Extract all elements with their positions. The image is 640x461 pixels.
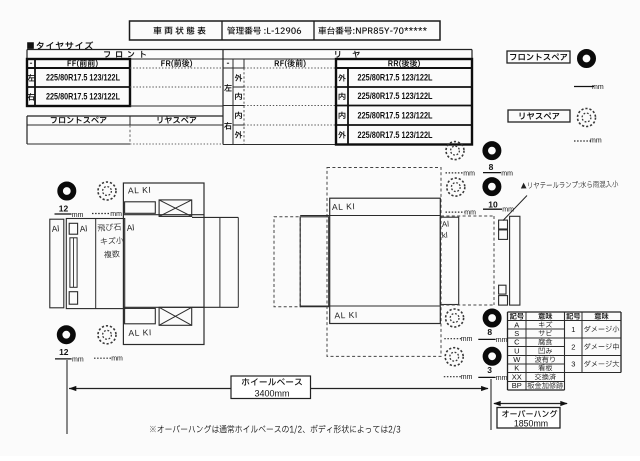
svg-text:mm: mm	[496, 337, 508, 344]
svg-text:225/80R17.5 123/122L: 225/80R17.5 123/122L	[358, 130, 433, 140]
svg-text:225/80R17.5 123/122L: 225/80R17.5 123/122L	[46, 72, 120, 82]
svg-text:Al: Al	[51, 223, 60, 234]
svg-text:3400mm: 3400mm	[254, 388, 289, 398]
svg-text:mm: mm	[592, 84, 604, 91]
svg-text:2: 2	[571, 342, 575, 351]
svg-text:mm: mm	[590, 137, 602, 144]
svg-text:1850mm: 1850mm	[514, 418, 548, 428]
svg-text:12: 12	[59, 347, 69, 357]
svg-text:mm: mm	[464, 209, 476, 216]
svg-text:AL KI: AL KI	[128, 185, 152, 196]
svg-text:mm: mm	[461, 336, 473, 343]
svg-text:225/80R17.5 123/122L: 225/80R17.5 123/122L	[46, 91, 120, 101]
svg-text:mm: mm	[110, 211, 122, 218]
svg-text:U: U	[514, 346, 519, 355]
svg-text:mm: mm	[501, 170, 513, 177]
svg-text:mm: mm	[72, 212, 84, 219]
svg-text:Al: Al	[126, 222, 135, 233]
svg-text:Al: Al	[79, 223, 88, 234]
svg-text:mm: mm	[111, 356, 123, 363]
svg-text:mm: mm	[463, 170, 475, 177]
svg-text:mm: mm	[461, 374, 473, 381]
svg-text:mm: mm	[496, 375, 508, 382]
svg-text:K: K	[514, 364, 519, 373]
svg-text:225/80R17.5 123/122L: 225/80R17.5 123/122L	[358, 72, 433, 82]
svg-text:8: 8	[489, 162, 494, 172]
svg-text:1: 1	[571, 325, 575, 334]
svg-text:10: 10	[488, 200, 498, 210]
svg-text:AL KI: AL KI	[332, 201, 356, 212]
svg-text:225/80R17.5 123/122L: 225/80R17.5 123/122L	[358, 110, 433, 120]
svg-text:mm: mm	[502, 207, 514, 214]
svg-text:225/80R17.5 123/122L: 225/80R17.5 123/122L	[358, 91, 433, 101]
svg-text:8: 8	[487, 327, 492, 337]
svg-text:AL KI: AL KI	[128, 327, 152, 338]
svg-text:C: C	[514, 338, 520, 347]
svg-text:mm: mm	[72, 357, 84, 364]
svg-text:3: 3	[571, 360, 575, 369]
svg-text:12: 12	[59, 203, 69, 213]
svg-text:S: S	[514, 329, 519, 338]
svg-text:Al: Al	[442, 220, 450, 229]
svg-text:3: 3	[487, 365, 492, 375]
svg-text:kl: kl	[442, 231, 449, 240]
svg-text:AL KI: AL KI	[334, 310, 358, 321]
svg-text:BP: BP	[512, 381, 522, 390]
